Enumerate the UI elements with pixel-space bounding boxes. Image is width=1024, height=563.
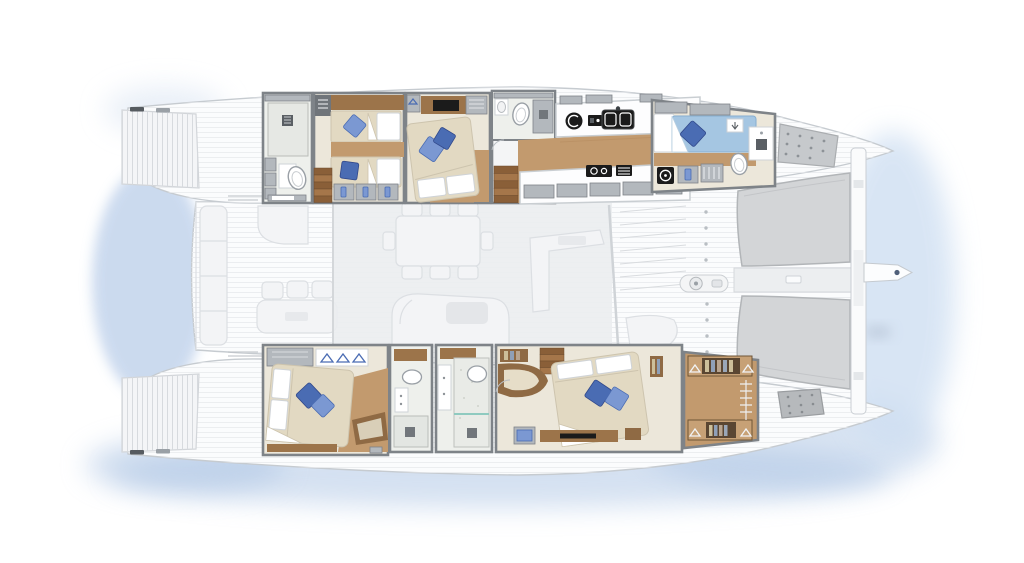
vip-cabin [406, 93, 490, 203]
catamaran-floor-plan: Sailing catamaran — top-down deck and ac… [0, 0, 1024, 563]
cooktop [586, 165, 612, 177]
single-berth-2 [331, 157, 401, 187]
shower-room [390, 345, 432, 452]
hanging-wardrobe [316, 349, 368, 366]
desk [540, 430, 618, 442]
headboard-shelf [331, 95, 404, 110]
starboard-hull-interior [263, 345, 824, 455]
helm-seat-ghost [626, 315, 677, 346]
walk-in-wardrobe [684, 352, 758, 448]
tall-cabinet [438, 365, 451, 410]
gear-lockers [334, 184, 398, 200]
microwave [588, 115, 602, 126]
washbasin [403, 370, 422, 384]
cleat [130, 107, 144, 112]
step [370, 447, 382, 453]
anchor-windlass [680, 275, 728, 292]
cockpit-lounge [258, 206, 308, 244]
single-berth-1 [331, 111, 401, 142]
bow-hatch [778, 389, 824, 418]
shower [394, 416, 428, 447]
saloon [333, 203, 618, 346]
washing-machine [657, 167, 674, 184]
bookshelf [650, 356, 663, 377]
mirror-cabinet [394, 349, 427, 361]
center-walkway-beam [734, 268, 852, 292]
cleat [156, 108, 170, 113]
shelf [440, 348, 476, 359]
double-berth [266, 364, 354, 448]
shower [268, 103, 308, 156]
floor-plan-canvas: Sailing catamaran — top-down deck and ac… [0, 0, 1024, 563]
master-bath [436, 345, 492, 452]
double-sink [602, 106, 634, 129]
saloon-sofa [392, 294, 509, 346]
aft-cabin [263, 345, 388, 455]
cleat [130, 450, 144, 455]
swim-platform-port [122, 107, 199, 188]
oven [616, 165, 632, 176]
tv-cabinet [514, 427, 535, 444]
port-hull-interior [263, 91, 838, 204]
extractor-fan [566, 113, 583, 130]
fore-cabin [652, 100, 775, 192]
companionway-stairs [314, 168, 332, 203]
washbasin [468, 366, 487, 382]
cabin-sole [331, 142, 404, 157]
cleat [156, 449, 170, 454]
locker-shelf [315, 95, 331, 116]
vanity [395, 388, 408, 412]
companionway-stairs [494, 166, 518, 203]
wardrobe-shelf-bottom [688, 420, 752, 440]
aft-head [263, 93, 312, 203]
twin-cabin [314, 93, 404, 203]
master-cabin [496, 345, 682, 452]
shower [749, 127, 773, 160]
swim-platform-starboard [122, 374, 199, 455]
wardrobe-shelf-top [688, 356, 753, 376]
cockpit-dining [257, 281, 337, 333]
pillow [340, 161, 359, 180]
double-berth [406, 117, 479, 203]
